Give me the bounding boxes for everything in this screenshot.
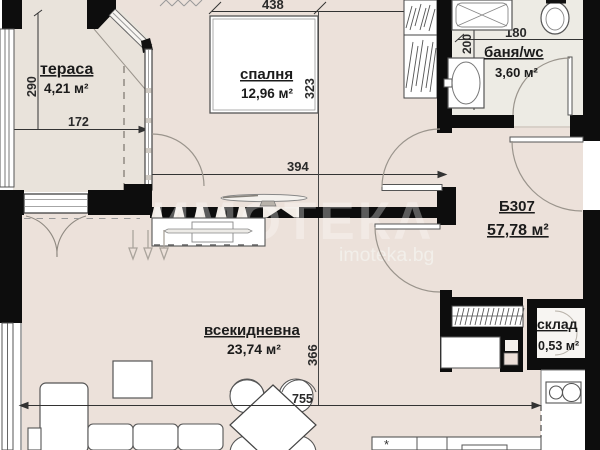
- svg-text:23,74 м²: 23,74 м²: [227, 341, 281, 357]
- svg-text:4,21 м²: 4,21 м²: [44, 81, 89, 96]
- svg-text:баня/wc: баня/wc: [484, 44, 544, 61]
- svg-text:290: 290: [25, 76, 39, 97]
- svg-text:склад: склад: [537, 316, 578, 332]
- svg-text:57,78 м²: 57,78 м²: [487, 222, 549, 239]
- svg-text:3,60 м²: 3,60 м²: [495, 65, 539, 80]
- svg-text:Б307: Б307: [499, 198, 535, 215]
- svg-text:366: 366: [305, 344, 320, 366]
- svg-text:755: 755: [292, 392, 313, 406]
- svg-text:всекидневна: всекидневна: [204, 322, 300, 339]
- svg-text:200: 200: [460, 34, 474, 54]
- svg-text:*: *: [384, 437, 389, 450]
- svg-text:323: 323: [303, 78, 317, 99]
- svg-text:тераса: тераса: [40, 61, 94, 78]
- svg-text:394: 394: [287, 159, 309, 174]
- svg-text:imoteka.bg: imoteka.bg: [339, 244, 434, 266]
- svg-text:спалня: спалня: [240, 66, 293, 83]
- svg-text:172: 172: [68, 115, 89, 129]
- svg-text:0,53 м²: 0,53 м²: [538, 339, 579, 353]
- svg-text:438: 438: [262, 0, 284, 12]
- svg-text:12,96 м²: 12,96 м²: [241, 86, 294, 101]
